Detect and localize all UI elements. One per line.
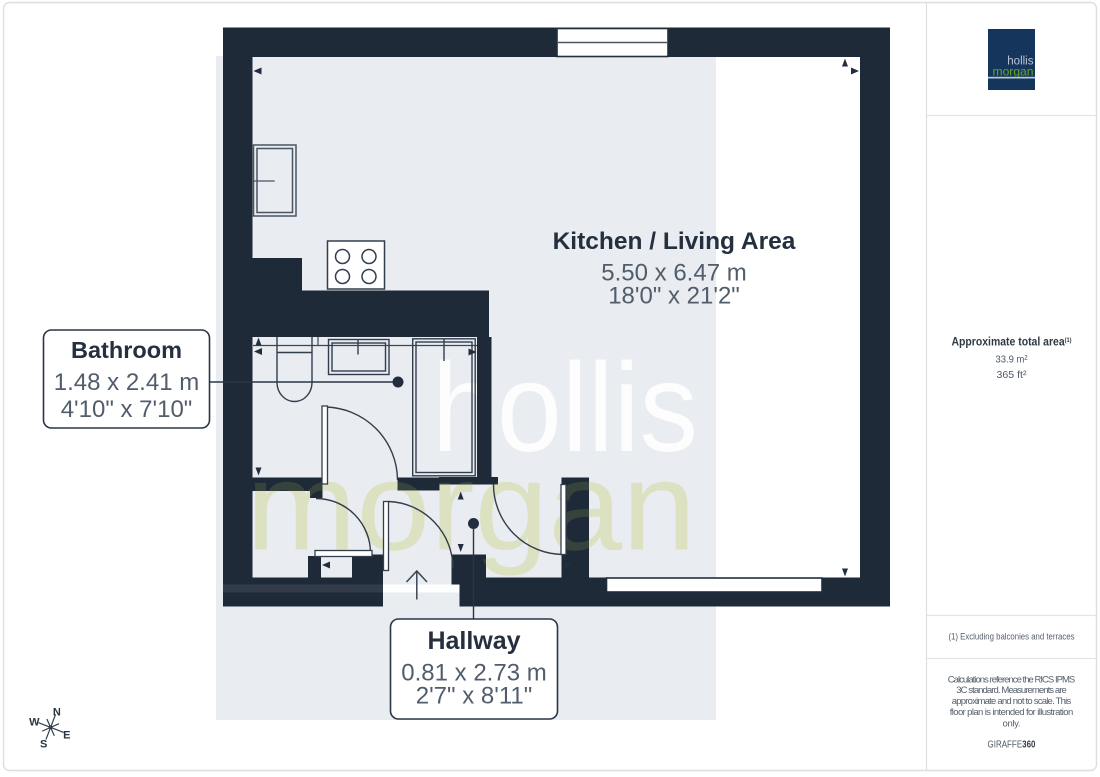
svg-text:Kitchen / Living Area: Kitchen / Living Area	[553, 228, 796, 255]
svg-text:only.: only.	[1003, 719, 1021, 730]
svg-text:approximate and not to scale.: approximate and not to scale. This	[952, 696, 1072, 707]
svg-text:morgan: morgan	[246, 436, 696, 577]
svg-text:18'0" x 21'2": 18'0" x 21'2"	[608, 283, 740, 310]
svg-text:33.9 m²: 33.9 m²	[996, 354, 1028, 366]
svg-text:3C standard. Measurements are: 3C standard. Measurements are	[956, 685, 1067, 696]
svg-text:4'10" x 7'10": 4'10" x 7'10"	[61, 396, 193, 423]
svg-text:Bathroom: Bathroom	[71, 337, 182, 363]
svg-text:E: E	[63, 729, 70, 741]
svg-text:floor plan is intended for ill: floor plan is intended for illustration	[950, 707, 1074, 718]
svg-text:Hallway: Hallway	[427, 627, 520, 655]
svg-text:Approximate total area(1): Approximate total area(1)	[952, 337, 1072, 349]
svg-text:N: N	[53, 707, 61, 719]
svg-text:S: S	[40, 739, 47, 751]
svg-text:W: W	[29, 716, 40, 728]
svg-text:Calculations reference the RIC: Calculations reference the RICS IPMS	[948, 675, 1076, 686]
svg-text:GIRAFFE360: GIRAFFE360	[988, 740, 1036, 751]
svg-text:(1) Excluding balconies and te: (1) Excluding balconies and terraces	[949, 632, 1075, 643]
svg-text:morgan: morgan	[993, 65, 1034, 79]
svg-text:365 ft²: 365 ft²	[997, 369, 1027, 381]
svg-text:2'7" x 8'11": 2'7" x 8'11"	[416, 683, 533, 710]
svg-text:1.48 x 2.41 m: 1.48 x 2.41 m	[54, 369, 199, 396]
